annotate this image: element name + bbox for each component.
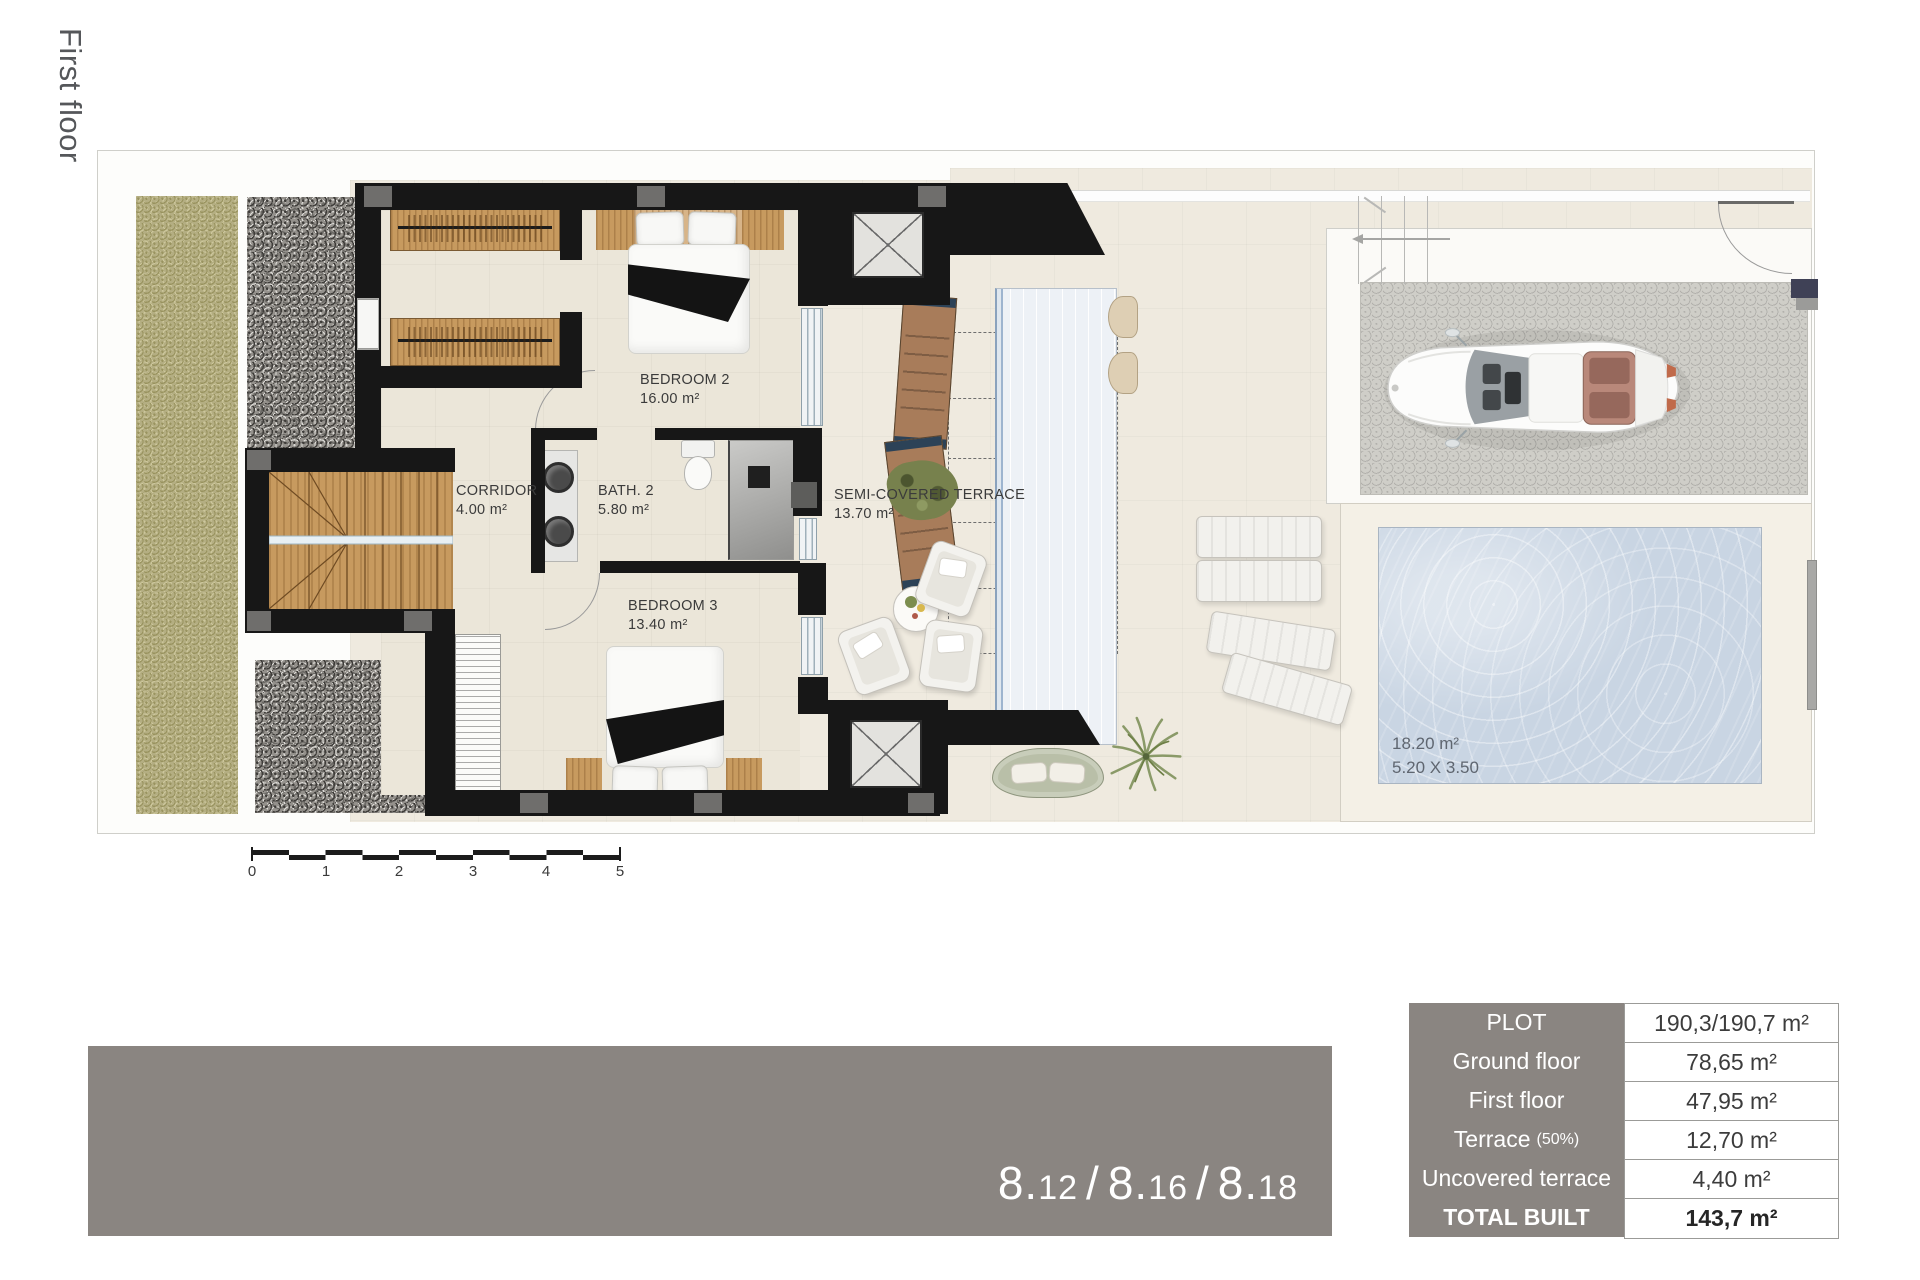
banner-units: 8.12/8.16/8.18 <box>998 1156 1298 1210</box>
terrace-stool <box>1108 296 1138 338</box>
boundary-marker <box>1791 279 1818 298</box>
row-value: 47,95 m² <box>1624 1081 1839 1122</box>
scale-tick-2: 2 <box>391 863 407 880</box>
pool-label: 18.20 m² 5.20 X 3.50 <box>1392 732 1479 780</box>
plot-ground-top <box>950 168 1812 190</box>
nightstand <box>566 758 602 794</box>
wall-bath-bottom-right <box>600 561 800 573</box>
shower <box>728 440 794 560</box>
gravel-patch-top <box>247 197 355 448</box>
table-row: Uncovered terrace 4,40 m² <box>1409 1159 1837 1198</box>
wall-pillar <box>364 186 392 207</box>
room-area: 13.40 m² <box>628 616 718 635</box>
table-row: Terrace (50%) 12,70 m² <box>1409 1120 1837 1159</box>
stairs-pillar <box>247 611 271 631</box>
wall-stub-2 <box>560 312 582 388</box>
sun-lounger-brown <box>893 294 957 449</box>
row-label: PLOT <box>1409 1003 1624 1045</box>
wall-stub-1 <box>560 206 582 260</box>
row-value: 143,7 m² <box>1624 1198 1839 1239</box>
room-area: 5.80 m² <box>598 501 654 520</box>
scale-end-tick <box>251 847 253 861</box>
scale-tick-1: 1 <box>318 863 334 880</box>
glass-door-bath <box>799 518 817 560</box>
stairs-wall-left <box>245 448 269 633</box>
row-label: First floor <box>1409 1081 1624 1123</box>
boundary-marker-small <box>1796 298 1818 310</box>
room-label-bedroom2: BEDROOM 2 16.00 m² <box>640 371 730 409</box>
curved-bench <box>992 748 1104 798</box>
window <box>357 298 379 350</box>
shaft-top <box>852 212 924 278</box>
room-label-terrace: SEMI-COVERED TERRACE 13.70 m² <box>834 486 1025 524</box>
room-area: 4.00 m² <box>456 501 537 520</box>
nightstand <box>596 208 634 250</box>
glass-door-bedroom2 <box>801 308 823 426</box>
stairs-steps <box>269 472 453 609</box>
room-name: CORRIDOR <box>456 482 537 501</box>
scale-tick-5: 5 <box>612 863 628 880</box>
room-label-bedroom3: BEDROOM 3 13.40 m² <box>628 597 718 635</box>
room-name: BEDROOM 3 <box>628 597 718 616</box>
sun-lounger-white <box>1196 516 1322 558</box>
nightstand <box>742 208 784 250</box>
stairs-wall-top <box>245 448 455 472</box>
room-area: 13.70 m² <box>834 505 1025 524</box>
entry-steps <box>1358 196 1450 284</box>
arrow-head <box>1352 234 1363 244</box>
row-label-suffix: (50%) <box>1537 1131 1580 1149</box>
pool-dimensions: 5.20 X 3.50 <box>1392 756 1479 780</box>
row-label: TOTAL BUILT <box>1409 1198 1624 1237</box>
table-row: First floor 47,95 m² <box>1409 1081 1837 1120</box>
room-name: BATH. 2 <box>598 482 654 501</box>
room-label-bath2: BATH. 2 5.80 m² <box>598 482 654 520</box>
car-top-view <box>1378 318 1696 458</box>
fence-strip <box>1807 560 1817 710</box>
wall-pillar <box>694 793 722 813</box>
room-area: 16.00 m² <box>640 390 730 409</box>
scale-end-tick <box>619 847 621 861</box>
row-value: 78,65 m² <box>1624 1042 1839 1083</box>
row-value: 4,40 m² <box>1624 1159 1839 1200</box>
wall-pillar <box>637 186 665 207</box>
nightstand <box>726 758 762 794</box>
row-label-text: Terrace <box>1454 1126 1531 1153</box>
washbasin <box>543 516 574 547</box>
shaft-bottom <box>850 720 922 788</box>
row-label: Terrace (50%) <box>1409 1120 1624 1162</box>
row-value: 12,70 m² <box>1624 1120 1839 1161</box>
sun-lounger-white <box>1196 560 1322 602</box>
room-label-corridor: CORRIDOR 4.00 m² <box>456 482 537 520</box>
grass-strip <box>136 196 238 814</box>
wardrobe-bedroom2-b <box>390 318 560 366</box>
wall-right-low2 <box>798 677 828 714</box>
wall-pillar-bath <box>791 482 817 508</box>
row-label: Ground floor <box>1409 1042 1624 1084</box>
scale-tick-0: 0 <box>244 863 260 880</box>
row-label: Uncovered terrace <box>1409 1159 1624 1201</box>
floor-title: First floor <box>52 28 88 163</box>
wall-bath-bottom-left <box>531 561 545 573</box>
scale-tick-3: 3 <box>465 863 481 880</box>
wall-pillar <box>918 186 946 207</box>
terrace-stool <box>1108 352 1138 394</box>
summary-table: PLOT 190,3/190,7 m² Ground floor 78,65 m… <box>1409 1003 1837 1237</box>
table-row: Ground floor 78,65 m² <box>1409 1042 1837 1081</box>
room-name: BEDROOM 2 <box>640 371 730 390</box>
shower-head <box>748 466 770 488</box>
entry-steps-arrow <box>1358 238 1450 240</box>
wall-right-lower <box>798 563 826 615</box>
bed-pillow <box>687 211 736 247</box>
glass-door-bedroom3 <box>801 617 823 675</box>
toilet-bowl <box>684 456 712 490</box>
wall-pillar <box>520 793 548 813</box>
stairs-pillar <box>247 450 271 470</box>
table-row-total: TOTAL BUILT 143,7 m² <box>1409 1198 1837 1237</box>
table-row: PLOT 190,3/190,7 m² <box>1409 1003 1837 1042</box>
pool-area: 18.20 m² <box>1392 732 1479 756</box>
armchair <box>918 618 985 693</box>
wall-bath-top-right <box>655 428 800 440</box>
wall-bath-top-left <box>531 428 597 440</box>
wall-hall-partition <box>355 366 582 388</box>
wall-left-mid <box>355 388 381 448</box>
unit-banner: 8.12/8.16/8.18 <box>88 1046 1332 1236</box>
washbasin <box>543 462 574 493</box>
room-name: SEMI-COVERED TERRACE <box>834 486 1025 505</box>
stairs-pillar <box>404 611 432 631</box>
table-plant <box>905 596 917 608</box>
palm-plant <box>1100 708 1192 800</box>
scale-tick-4: 4 <box>538 863 554 880</box>
wardrobe-bedroom2-a <box>390 206 560 251</box>
wall-pillar <box>908 793 934 813</box>
floor-plan-document: { "floor_label": "First floor", "plan": … <box>0 0 1920 1280</box>
wall-right-upper <box>798 206 828 306</box>
wall-bottom <box>425 790 940 816</box>
bed-pillow <box>635 211 684 247</box>
wardrobe-bedroom3 <box>455 634 501 794</box>
scale-bar-bottom <box>252 855 620 860</box>
row-value: 190,3/190,7 m² <box>1624 1003 1839 1044</box>
wall-left-lower <box>425 633 455 795</box>
